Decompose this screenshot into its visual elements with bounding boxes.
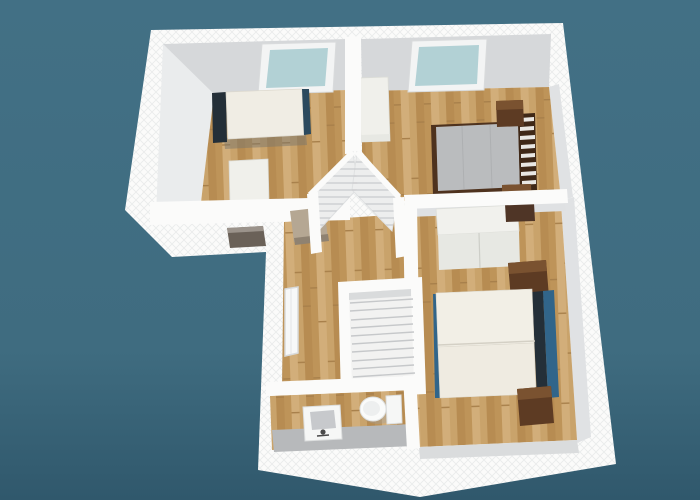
- mattress-upper: [436, 289, 534, 347]
- bathroom-sink: [303, 405, 342, 441]
- wardrobe-front-edge: [361, 134, 390, 142]
- bathroom: [266, 375, 420, 452]
- toilet-seat: [363, 401, 380, 416]
- floorplan-image: [0, 0, 700, 500]
- bed-mattress: [436, 123, 520, 191]
- stair-treads: [349, 289, 414, 387]
- south-wall-window: [227, 226, 266, 248]
- sink-faucet: [320, 429, 325, 434]
- nightstand-top: [496, 100, 524, 127]
- sink-basin: [310, 410, 336, 430]
- divider-top-rooms: [345, 36, 361, 154]
- brown-chest: [505, 203, 535, 222]
- nightstand-bottom: [517, 386, 554, 426]
- toilet: [360, 395, 402, 424]
- sink-faucet-handle: [317, 435, 329, 436]
- bed-mattress: [226, 89, 304, 139]
- bedroom-top-right: [359, 34, 573, 209]
- skylight-glass: [415, 45, 479, 86]
- bed-headboard: [212, 92, 227, 143]
- wardrobe-body: [359, 77, 390, 142]
- floorplan-svg: [0, 0, 700, 500]
- desk-left-room: [229, 159, 269, 204]
- bedroom-bottom-right: [407, 197, 591, 459]
- hall-west-window: [285, 287, 298, 356]
- wardrobe-top-right-room: [359, 77, 390, 142]
- toilet-tank: [386, 395, 402, 424]
- single-bed: [212, 89, 311, 149]
- skylight-glass: [266, 48, 328, 88]
- skylight-left: [258, 42, 336, 94]
- skylight-right: [408, 39, 487, 92]
- nightstand-top-face: [496, 100, 523, 110]
